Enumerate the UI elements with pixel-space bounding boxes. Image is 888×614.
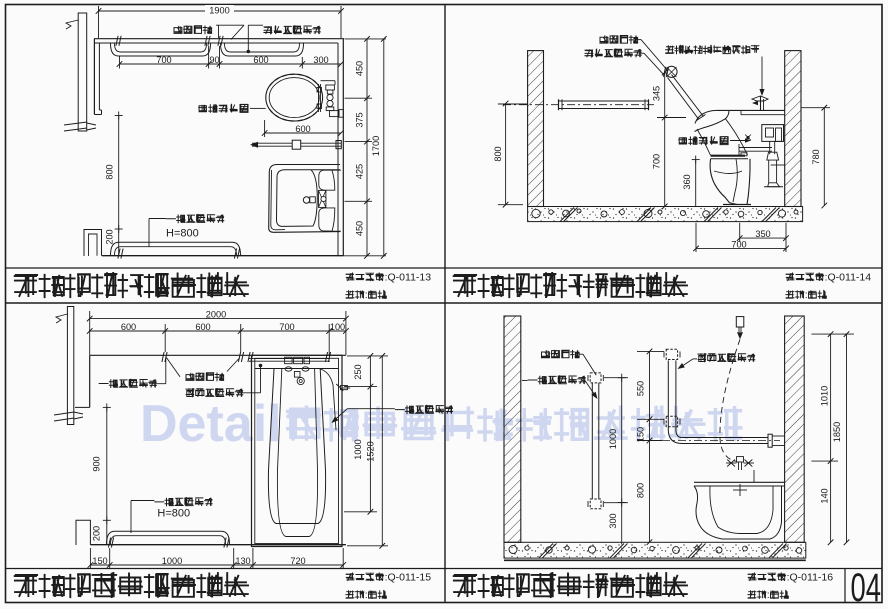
svg-text::Q-011-15: :Q-011-15 (385, 572, 432, 584)
svg-text:345: 345 (652, 86, 662, 101)
svg-text:1010: 1010 (819, 386, 829, 406)
svg-text::Q-011-13: :Q-011-13 (385, 272, 432, 284)
svg-text:780: 780 (811, 149, 821, 164)
svg-text:900: 900 (91, 456, 101, 471)
svg-text:800: 800 (636, 483, 646, 498)
svg-text:140: 140 (819, 488, 829, 503)
svg-text::Q-011-16: :Q-011-16 (787, 572, 834, 584)
svg-text:H=800: H=800 (166, 228, 199, 240)
svg-text::Q-011-14: :Q-011-14 (825, 272, 872, 284)
svg-text:300: 300 (608, 513, 618, 528)
svg-text::: : (365, 289, 368, 301)
svg-text:700: 700 (652, 154, 662, 169)
svg-text:H=800: H=800 (157, 507, 190, 519)
svg-text:Detail: Detail (140, 395, 282, 453)
svg-text:200: 200 (91, 526, 101, 541)
svg-text:550: 550 (636, 381, 646, 396)
svg-text:130: 130 (235, 556, 250, 566)
svg-text:1000: 1000 (353, 439, 363, 459)
svg-text:600: 600 (195, 322, 210, 332)
svg-text:700: 700 (731, 240, 746, 250)
svg-text:04: 04 (851, 566, 882, 609)
svg-text:425: 425 (354, 164, 364, 179)
svg-text:200: 200 (105, 229, 115, 244)
svg-text:250: 250 (353, 364, 363, 379)
svg-text:350: 350 (755, 229, 770, 239)
svg-text:2000: 2000 (206, 310, 226, 320)
svg-text:1850: 1850 (832, 422, 842, 442)
svg-text::: : (365, 589, 368, 601)
svg-text:360: 360 (682, 174, 692, 189)
svg-text::: : (805, 289, 808, 301)
svg-text:600: 600 (253, 55, 268, 65)
svg-text:800: 800 (493, 146, 503, 161)
svg-text:300: 300 (313, 55, 328, 65)
svg-text:1000: 1000 (608, 429, 618, 449)
svg-text:700: 700 (279, 322, 294, 332)
svg-text:450: 450 (354, 221, 364, 236)
svg-text:800: 800 (105, 164, 115, 179)
svg-text::: : (767, 589, 770, 601)
svg-text:150: 150 (636, 427, 646, 442)
svg-text:90: 90 (209, 55, 219, 65)
svg-text:700: 700 (156, 55, 171, 65)
svg-text:1700: 1700 (371, 136, 381, 156)
svg-text:720: 720 (290, 556, 305, 566)
svg-text:600: 600 (295, 124, 310, 134)
svg-text:150: 150 (92, 556, 107, 566)
svg-text:600: 600 (121, 322, 136, 332)
svg-text:375: 375 (354, 112, 364, 127)
svg-text:1000: 1000 (162, 556, 182, 566)
svg-text:450: 450 (354, 61, 364, 76)
svg-text:100: 100 (330, 322, 345, 332)
svg-text:1900: 1900 (209, 6, 229, 16)
svg-text:1520: 1520 (366, 441, 376, 461)
